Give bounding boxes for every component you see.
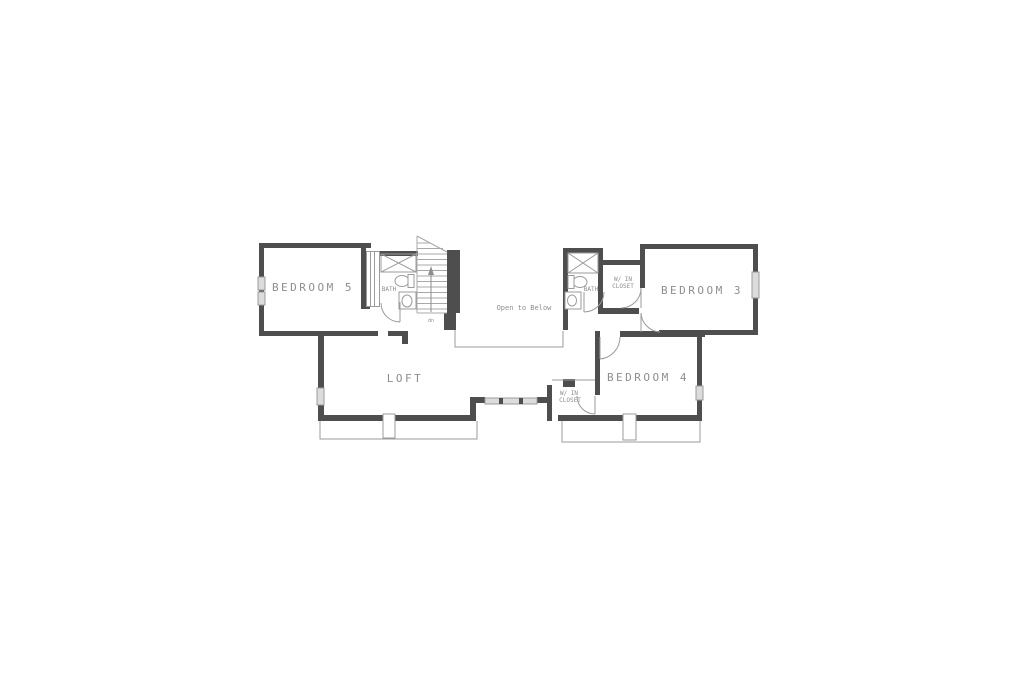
wall [537,397,547,403]
wall [547,385,552,421]
closet4-label-line2: CLOSET [559,397,581,404]
window [383,414,395,438]
wall [361,247,366,305]
window [258,277,265,290]
room-label-bedroom4: BEDROOM 4 [607,371,689,384]
wall [318,415,476,421]
wall [640,244,758,249]
open-to-below-outline [455,330,563,347]
wall [620,331,705,337]
sink-icon [399,292,416,309]
floor-plan: BEDROOM 5 BATH dn Open to Below BATH W/ … [0,0,1024,682]
wall [470,397,476,421]
door-arc [621,288,641,308]
room-label-bedroom3: BEDROOM 3 [661,284,743,297]
wardrobe-closet [367,252,380,307]
wall [563,248,568,330]
window [258,292,265,305]
wall [603,260,645,265]
room-label-bedroom5: BEDROOM 5 [272,281,354,294]
door-arc [641,313,660,332]
window [752,272,759,298]
floor-plan-page: BEDROOM 5 BATH dn Open to Below BATH W/ … [0,0,1024,682]
stair-wall [444,313,456,330]
stair-wall [447,250,460,313]
room-label-bath-right: BATH [584,286,599,293]
closet3-label-line1: W/ IN [614,276,632,283]
railing [485,398,537,404]
window [317,388,324,405]
linen-closet-left [381,254,416,272]
wall [476,397,485,403]
closet3-label-line2: CLOSET [612,283,634,290]
wall [402,335,408,344]
wall [563,248,603,253]
closet4-label-line1: W/ IN [560,390,578,397]
wall [595,337,600,395]
walls [259,243,758,421]
roof-outline [320,421,477,439]
wall [259,243,371,248]
stair-arrow-icon [428,266,434,312]
wall [259,331,378,336]
toilet-icon [395,275,414,288]
stair-direction-label: dn [428,318,434,324]
thin-outlines [320,330,700,442]
room-label-loft: LOFT [387,372,424,385]
wall [598,308,639,314]
window [696,386,703,400]
room-label-bath-left: BATH [382,286,397,293]
door-arc [381,302,400,322]
door-arc [600,337,620,359]
linen-closet-right [568,253,598,273]
window [623,414,636,440]
sink-icon [565,292,581,309]
wall [595,331,600,337]
wall [697,337,702,421]
open-to-below-label: Open to Below [497,304,553,312]
